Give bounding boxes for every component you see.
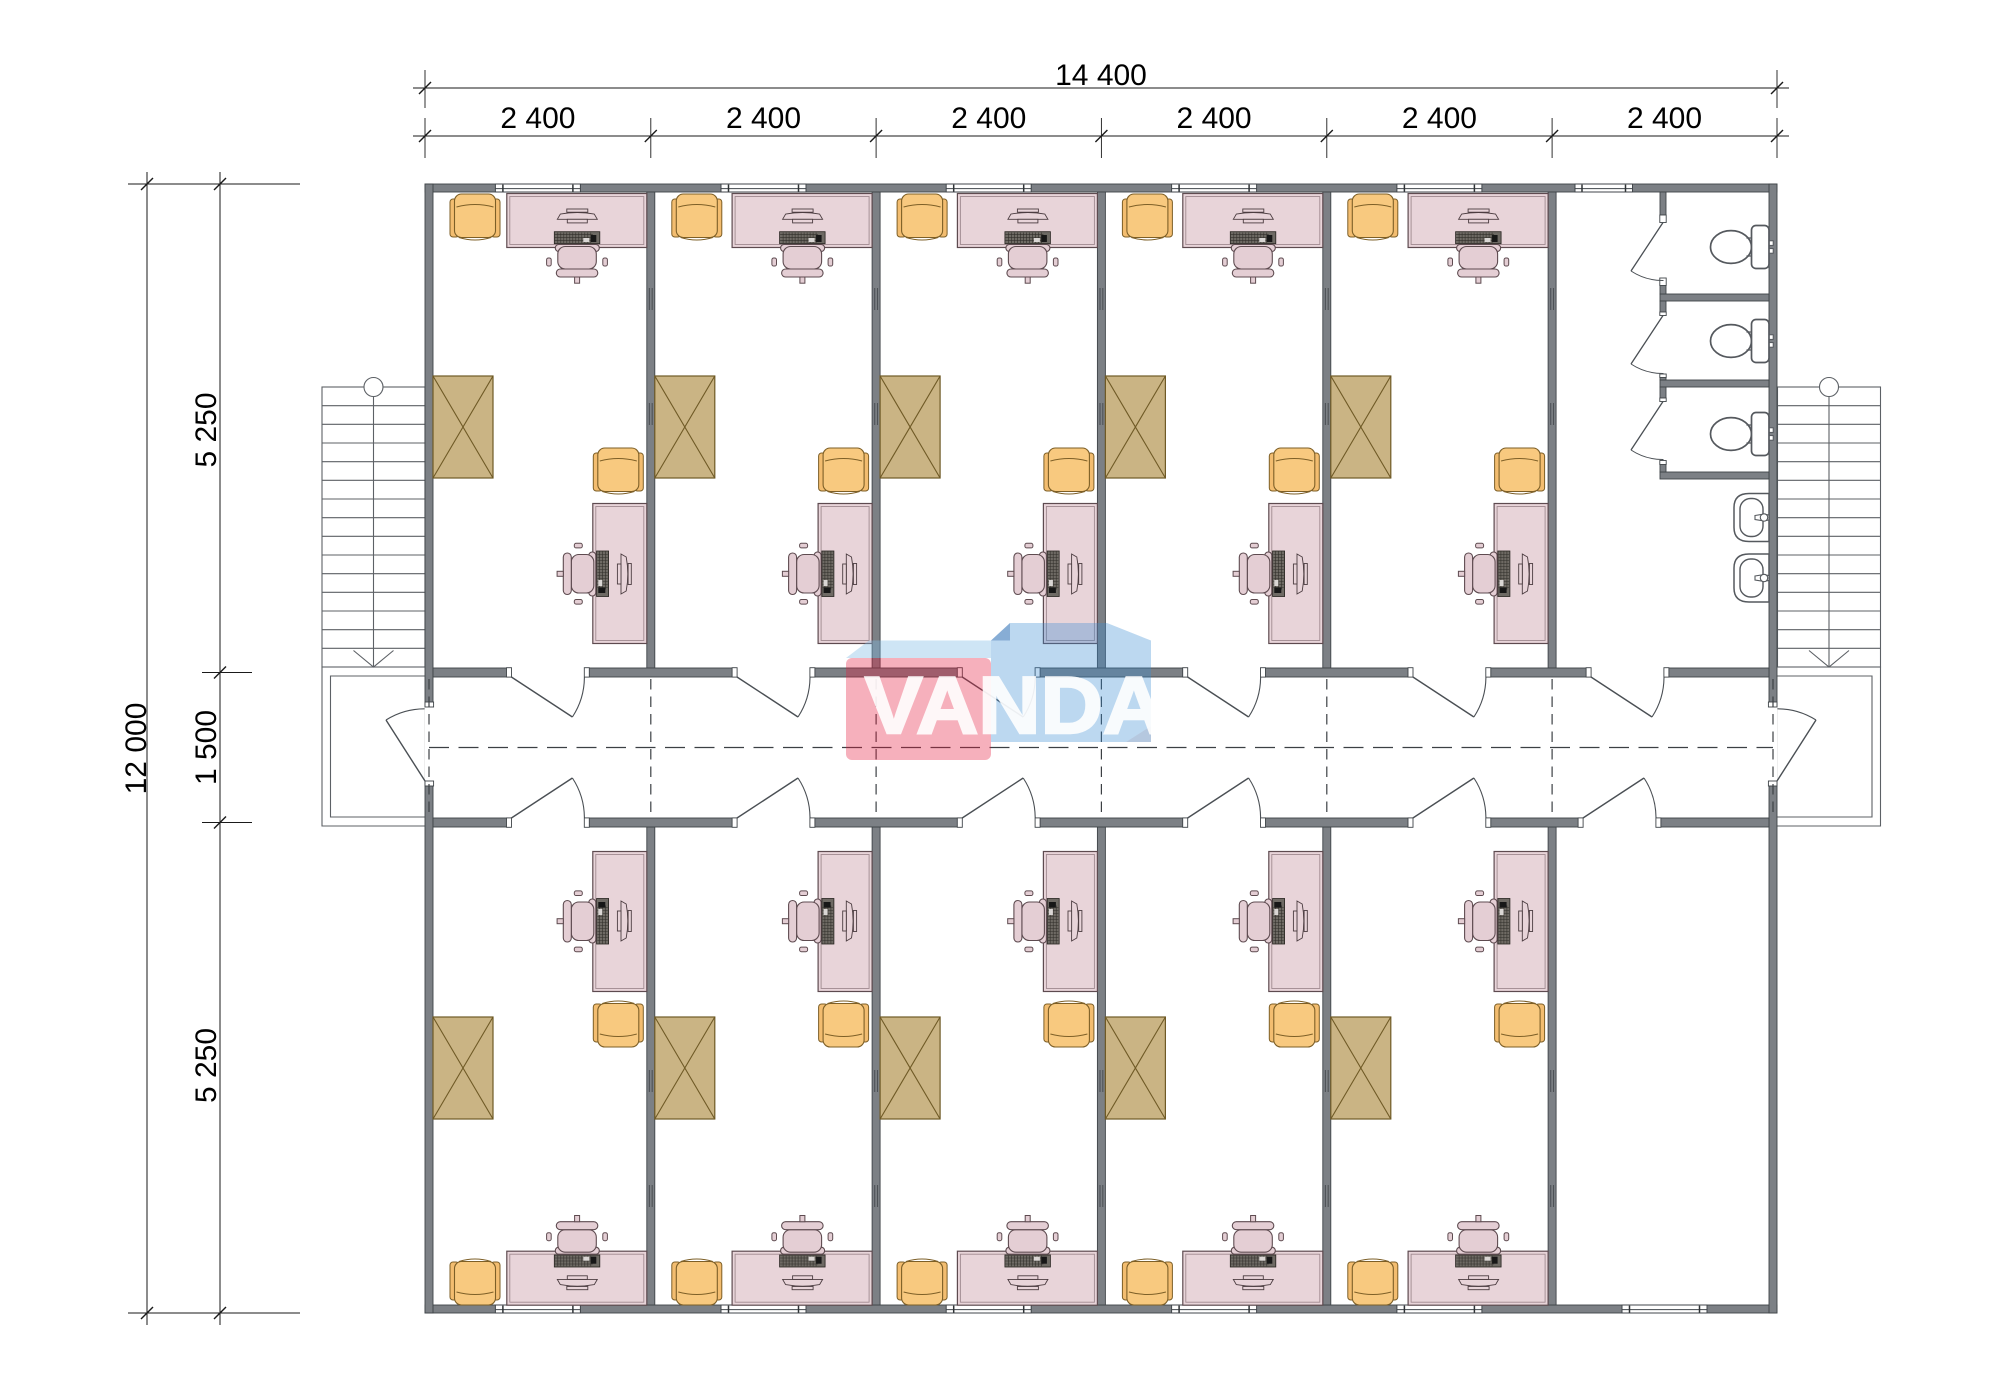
svg-text:2 400: 2 400 — [726, 102, 801, 135]
svg-text:2 400: 2 400 — [1402, 102, 1477, 135]
svg-text:VANDA: VANDA — [865, 661, 1165, 751]
svg-text:12 000: 12 000 — [120, 703, 153, 795]
svg-text:2 400: 2 400 — [1177, 102, 1252, 135]
svg-text:2 400: 2 400 — [1627, 102, 1702, 135]
svg-text:1 500: 1 500 — [190, 710, 223, 785]
svg-text:2 400: 2 400 — [951, 102, 1026, 135]
svg-text:2 400: 2 400 — [500, 102, 575, 135]
svg-text:5 250: 5 250 — [190, 392, 223, 467]
svg-text:14 400: 14 400 — [1055, 59, 1147, 92]
svg-text:5 250: 5 250 — [190, 1028, 223, 1103]
